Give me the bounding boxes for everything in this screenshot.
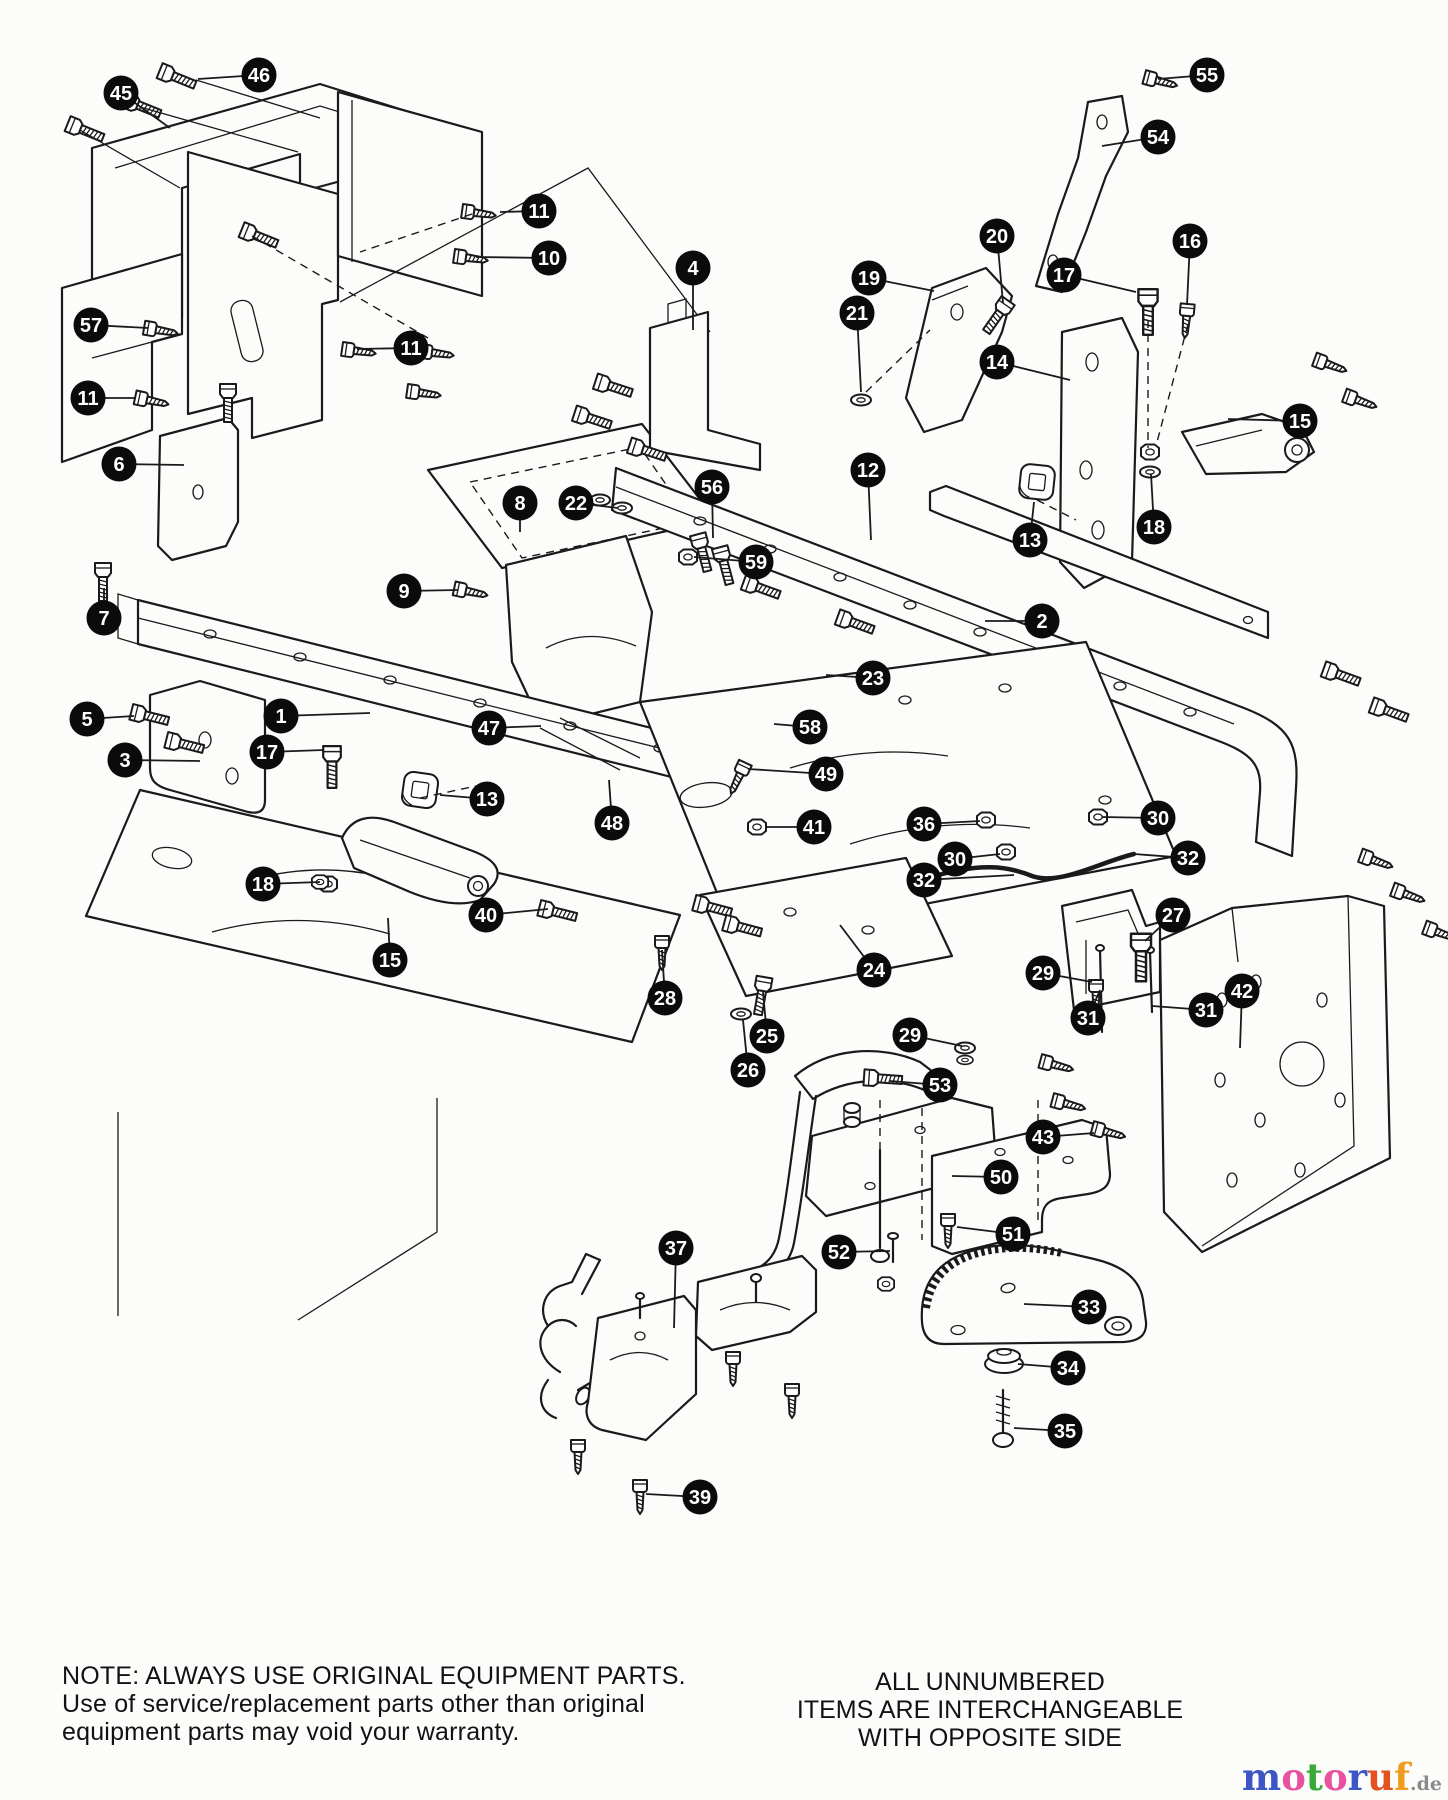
svg-text:13: 13 [1019, 530, 1041, 552]
pedal-linkage-assembly [758, 934, 1154, 1291]
callout-30: 30 [1141, 801, 1176, 836]
watermark-letter: t [1306, 1755, 1323, 1799]
callout-29: 29 [1026, 956, 1061, 991]
callout-56: 56 [695, 470, 730, 505]
callout-15: 15 [1283, 404, 1318, 439]
svg-text:55: 55 [1196, 65, 1218, 87]
svg-text:56: 56 [701, 477, 723, 499]
svg-text:34: 34 [1057, 1358, 1080, 1380]
interchange-note-line2: ITEMS ARE INTERCHANGEABLE [788, 1696, 1192, 1724]
svg-text:27: 27 [1162, 905, 1184, 927]
callout-40: 40 [469, 898, 504, 933]
callout-22: 22 [559, 486, 594, 521]
svg-text:31: 31 [1077, 1008, 1099, 1030]
callout-1: 1 [264, 699, 299, 734]
svg-text:32: 32 [913, 870, 935, 892]
svg-text:28: 28 [654, 988, 676, 1010]
lift-shaft-assembly [118, 1098, 816, 1514]
svg-text:11: 11 [77, 388, 98, 410]
callout-58: 58 [793, 710, 828, 745]
svg-text:8: 8 [514, 493, 525, 515]
warranty-note-line1: NOTE: ALWAYS USE ORIGINAL EQUIPMENT PART… [62, 1662, 686, 1690]
svg-text:14: 14 [986, 352, 1009, 374]
callout-50: 50 [984, 1160, 1019, 1195]
svg-text:43: 43 [1032, 1127, 1054, 1149]
callout-54: 54 [1141, 120, 1176, 155]
svg-text:18: 18 [252, 874, 274, 896]
callout-29: 29 [893, 1018, 928, 1053]
svg-text:45: 45 [110, 83, 132, 105]
svg-text:17: 17 [256, 742, 278, 764]
callout-31: 31 [1189, 993, 1224, 1028]
callout-31: 31 [1071, 1001, 1106, 1036]
svg-text:23: 23 [862, 668, 884, 690]
watermark-letter: o [1323, 1755, 1348, 1799]
warranty-note-line2: Use of service/replacement parts other t… [62, 1690, 686, 1718]
callout-11: 11 [71, 381, 106, 416]
svg-text:1: 1 [275, 706, 286, 728]
right-mount-plate [1160, 896, 1390, 1252]
callout-19: 19 [852, 261, 887, 296]
interchange-note-line1: ALL UNNUMBERED [788, 1668, 1192, 1696]
callout-25: 25 [750, 1019, 785, 1054]
callout-35: 35 [1048, 1414, 1083, 1449]
svg-text:57: 57 [80, 315, 102, 337]
svg-text:36: 36 [913, 814, 935, 836]
callout-26: 26 [731, 1053, 766, 1088]
callout-5: 5 [70, 702, 105, 737]
callout-3: 3 [108, 743, 143, 778]
callout-12: 12 [851, 453, 886, 488]
svg-text:7: 7 [98, 608, 109, 630]
callout-11: 11 [522, 194, 557, 229]
svg-text:54: 54 [1147, 127, 1170, 149]
watermark-letter: m [1242, 1755, 1281, 1799]
svg-text:15: 15 [1289, 411, 1311, 433]
svg-text:37: 37 [665, 1238, 687, 1260]
callout-49: 49 [809, 757, 844, 792]
svg-text:24: 24 [863, 960, 886, 982]
callout-6: 6 [102, 447, 137, 482]
callout-13: 13 [1013, 523, 1048, 558]
callout-52: 52 [822, 1235, 857, 1270]
svg-text:20: 20 [986, 226, 1008, 248]
svg-text:59: 59 [745, 552, 767, 574]
callout-32: 32 [907, 863, 942, 898]
svg-text:48: 48 [601, 813, 623, 835]
svg-text:11: 11 [528, 201, 549, 223]
callout-27: 27 [1156, 898, 1191, 933]
callout-47: 47 [472, 711, 507, 746]
callout-17: 17 [1047, 258, 1082, 293]
callout-33: 33 [1072, 1290, 1107, 1325]
callout-7: 7 [87, 601, 122, 636]
svg-text:46: 46 [248, 65, 270, 87]
watermark-letter: u [1367, 1755, 1394, 1799]
callout-57: 57 [74, 308, 109, 343]
callout-17: 17 [250, 735, 285, 770]
callout-14: 14 [980, 345, 1015, 380]
svg-text:49: 49 [815, 764, 837, 786]
svg-text:26: 26 [737, 1060, 759, 1082]
svg-text:51: 51 [1002, 1224, 1024, 1246]
callout-51: 51 [996, 1217, 1031, 1252]
callout-28: 28 [648, 981, 683, 1016]
svg-text:22: 22 [565, 493, 587, 515]
callout-46: 46 [242, 58, 277, 93]
svg-text:21: 21 [846, 303, 868, 325]
callout-42: 42 [1225, 974, 1260, 1009]
svg-text:9: 9 [398, 581, 409, 603]
svg-text:25: 25 [756, 1026, 778, 1048]
callout-36: 36 [907, 807, 942, 842]
callout-20: 20 [980, 219, 1015, 254]
svg-text:6: 6 [113, 454, 124, 476]
svg-text:29: 29 [1032, 963, 1054, 985]
svg-text:30: 30 [944, 849, 966, 871]
svg-text:3: 3 [119, 750, 130, 772]
callout-59: 59 [739, 545, 774, 580]
callout-8: 8 [503, 486, 538, 521]
svg-text:33: 33 [1078, 1297, 1100, 1319]
svg-text:12: 12 [857, 460, 879, 482]
warranty-note-line3: equipment parts may void your warranty. [62, 1718, 686, 1746]
watermark: motoruf.de [1242, 1759, 1442, 1796]
svg-text:19: 19 [858, 268, 880, 290]
svg-text:18: 18 [1143, 517, 1165, 539]
svg-text:47: 47 [478, 718, 500, 740]
callout-39: 39 [683, 1480, 718, 1515]
callout-43: 43 [1026, 1120, 1061, 1155]
watermark-letter: r [1348, 1755, 1368, 1799]
callout-23: 23 [856, 661, 891, 696]
exploded-parts-drawing: 4546555411104201619172157111411156128225… [0, 0, 1448, 1800]
callout-24: 24 [857, 953, 892, 988]
callout-2: 2 [1025, 604, 1060, 639]
svg-text:40: 40 [475, 905, 497, 927]
svg-text:32: 32 [1177, 848, 1199, 870]
svg-text:31: 31 [1195, 1000, 1217, 1022]
svg-text:58: 58 [799, 717, 821, 739]
callout-15: 15 [373, 943, 408, 978]
callout-13: 13 [470, 782, 505, 817]
svg-text:29: 29 [899, 1025, 921, 1047]
svg-text:39: 39 [689, 1487, 711, 1509]
callout-48: 48 [595, 806, 630, 841]
svg-text:4: 4 [687, 258, 699, 280]
callout-41: 41 [797, 810, 832, 845]
callout-18: 18 [1137, 510, 1172, 545]
callout-9: 9 [387, 574, 422, 609]
svg-text:2: 2 [1036, 611, 1047, 633]
svg-text:53: 53 [929, 1075, 951, 1097]
watermark-brand-text: motoruf [1242, 1755, 1410, 1799]
sector-gear [922, 1245, 1146, 1447]
interchange-note: ALL UNNUMBERED ITEMS ARE INTERCHANGEABLE… [788, 1668, 1192, 1752]
callout-37: 37 [659, 1231, 694, 1266]
watermark-letter: o [1281, 1755, 1306, 1799]
svg-text:50: 50 [990, 1167, 1012, 1189]
callout-16: 16 [1173, 224, 1208, 259]
interchange-note-line3: WITH OPPOSITE SIDE [788, 1724, 1192, 1752]
svg-text:16: 16 [1179, 231, 1201, 253]
svg-text:11: 11 [400, 338, 421, 360]
callout-53: 53 [923, 1068, 958, 1103]
scanned-parts-diagram-page: 4546555411104201619172157111411156128225… [0, 0, 1448, 1800]
watermark-domain-suffix: .de [1410, 1773, 1442, 1795]
callout-30: 30 [938, 842, 973, 877]
callout-11: 11 [394, 331, 429, 366]
callout-4: 4 [676, 251, 711, 286]
svg-text:30: 30 [1147, 808, 1169, 830]
callout-18: 18 [246, 867, 281, 902]
callout-34: 34 [1051, 1351, 1086, 1386]
svg-text:52: 52 [828, 1242, 850, 1264]
top-right-brackets [906, 96, 1314, 638]
svg-text:13: 13 [476, 789, 498, 811]
svg-text:10: 10 [538, 248, 560, 270]
callout-32: 32 [1171, 841, 1206, 876]
svg-text:35: 35 [1054, 1421, 1076, 1443]
watermark-letter: f [1394, 1755, 1410, 1799]
svg-text:41: 41 [803, 817, 825, 839]
svg-text:15: 15 [379, 950, 401, 972]
warranty-note: NOTE: ALWAYS USE ORIGINAL EQUIPMENT PART… [62, 1662, 686, 1746]
callout-21: 21 [840, 296, 875, 331]
svg-text:17: 17 [1053, 265, 1075, 287]
callout-10: 10 [532, 241, 567, 276]
svg-text:42: 42 [1231, 981, 1253, 1003]
callout-55: 55 [1190, 58, 1225, 93]
callout-45: 45 [104, 76, 139, 111]
svg-text:5: 5 [81, 709, 92, 731]
